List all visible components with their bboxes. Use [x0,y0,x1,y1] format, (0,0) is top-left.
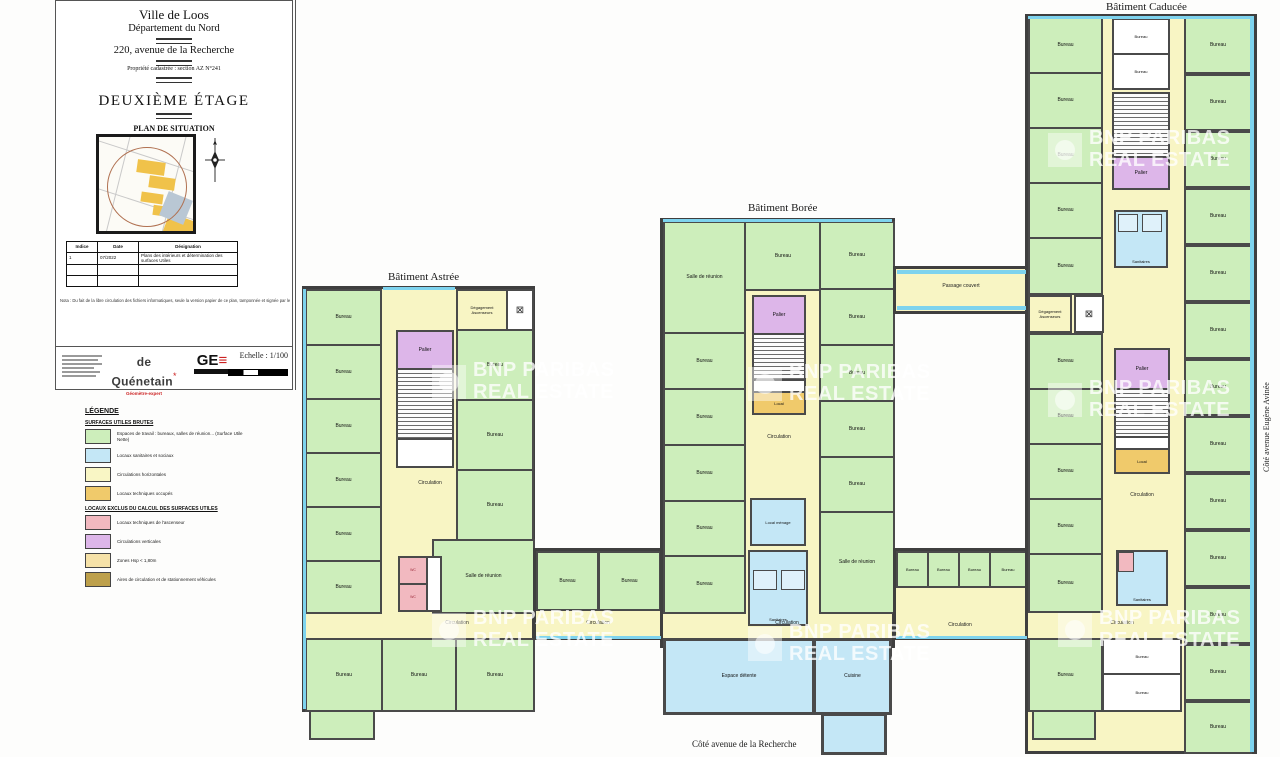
room-label: Bureau [1033,42,1098,48]
room-bureau: Bureau [927,551,960,588]
legend-item-label: Locaux techniques de l'ascenseur [117,520,185,526]
room-cuisine: Cuisine [813,638,892,715]
room-bureau: Bureau [819,400,895,458]
address-text-bar [62,363,102,365]
room-label: Bureau [1189,42,1248,48]
address-text-bar [62,359,98,361]
room-label: Bureau [1033,97,1098,103]
surveyor-subtitle: Géomètre-expert [104,391,184,396]
room-label: Local ménage [754,520,802,525]
color-swatch [85,486,111,501]
ge-logo-bar [194,369,230,374]
room-label: Sanitaires [1118,259,1164,264]
room-espace-detente: Espace détente [663,638,815,715]
room-wc: WC [398,583,428,612]
room-palier: Palier [396,330,454,370]
table-row [67,276,238,287]
room-bureau: Bureau [1028,638,1103,712]
room-bureau: Bureau [819,288,895,346]
wc-cubicle [1118,214,1138,232]
room-bureau: Bureau [1102,638,1182,675]
revision-col-header: Indice [67,242,98,253]
asterisk-mark: * [173,371,177,381]
room-label: Bureau [668,581,741,587]
room-local-technique: Local [1114,448,1170,474]
room-bureau: Bureau [456,399,534,471]
room-bureau: Bureau [305,638,383,712]
room-label: Salle de réunion [824,559,890,565]
window-strip [536,636,661,639]
color-swatch [85,448,111,463]
room-bureau: Bureau [989,551,1027,588]
street-label-bottom: Côté avenue de la Recherche [692,739,796,749]
room-label: Bureau [1189,270,1248,276]
corridor-label: Circulation [1090,620,1154,626]
corridor-label: Circulation [566,620,630,626]
room-label: Bureau [1189,612,1248,618]
room-label: Bureau [930,567,957,572]
room-bureau: Bureau [381,638,457,712]
corridor-label: Circulation [755,620,819,626]
room-salle-reunion: Salle de réunion [432,539,535,614]
room-label: Bureau [461,432,529,438]
room-bureau: Bureau [663,388,746,446]
legend-item: Espaces de travail : bureaux, salles de … [85,429,250,444]
room-label: Bureau [749,253,817,259]
legend-item-label: Locaux techniques occupés [117,491,173,497]
legend-item: Locaux techniques occupés [85,486,250,501]
room-label: Bureau [668,414,741,420]
room-bureau: Bureau [1028,127,1103,184]
wc-cubicle [1142,214,1162,232]
room-bureau: Bureau [1028,553,1103,613]
wc-cubicle [1118,552,1134,572]
color-swatch [85,467,111,482]
revision-designation: Plans des intérieurs et détermination de… [139,253,238,265]
room-label: Cuisine [819,673,886,679]
room-label: Bureau [1189,555,1248,561]
room-label: Palier [1118,366,1166,372]
room-bureau: Bureau [1184,131,1252,188]
room-bureau: Bureau [744,221,822,291]
room-label: WC [401,595,425,599]
room-bureau: Bureau [456,469,534,541]
elevator-icon: ⊠ [1085,309,1093,320]
room-bureau: Bureau [456,329,534,401]
color-swatch [85,515,111,530]
room-bureau: Bureau [455,638,535,712]
room-label: Local [756,401,802,406]
table-row: 1 07/2022 Plans des intérieurs et déterm… [67,253,238,265]
staircase [1114,388,1170,438]
room-label: Local [1118,459,1166,464]
room-bureau: Bureau [1028,72,1103,129]
corridor-label: Circulation [425,620,489,626]
room-label: Dégagement Ascenseurs [1032,309,1069,319]
room-bureau [309,710,375,740]
room-bureau: Bureau [1184,530,1252,587]
room-label: Bureau [310,672,378,678]
window-strip [897,270,1026,274]
room-label: Bureau [1033,468,1098,474]
room-label: Palier [756,312,802,318]
room-label: Bureau [1189,441,1248,447]
floor-plan-canvas: Ville de Loos Département du Nord 220, a… [0,0,1280,757]
legend-item-label: Aires de circulation et de stationnement… [117,577,216,583]
legend-item: Circulations verticales [85,534,250,549]
room-wc: WC [398,556,428,585]
room-bureau [1032,710,1096,740]
legend-item: Aires de circulation et de stationnement… [85,572,250,587]
window-strip [897,306,1026,310]
floor-title: DEUXIÈME ÉTAGE [56,93,292,110]
address-text-bar [62,375,96,377]
room-label: Bureau [1033,523,1098,529]
room-bureau: Bureau [1028,333,1103,390]
room-label: Bureau [1189,99,1248,105]
divider [156,38,192,44]
room-label: Bureau [1107,690,1177,695]
room-bureau: Bureau [1184,188,1252,245]
window-strip [1250,17,1254,752]
room-bureau: Bureau [598,551,661,611]
room-bureau: Bureau [1184,587,1252,644]
room-label: Bureau [824,252,890,258]
room-label: Bureau [310,531,377,537]
legend-item-label: Zones Hsp < 1,80m [117,558,156,564]
room-label: Bureau [310,369,377,375]
legend: LÉGENDE SURFACES UTILES BRUTES Espaces d… [85,408,250,591]
room-label: Bureau [310,314,377,320]
situation-map [96,134,196,234]
room-label: Bureau [1033,152,1098,158]
room-bureau: Bureau [819,344,895,402]
room-palier: Palier [1112,156,1170,190]
room-bureau: Bureau [819,221,895,290]
room-degagement: Dégagement Ascenseurs [1028,295,1072,333]
room-label: Bureau [824,370,890,376]
room-label: Dégagement Ascenseurs [460,305,504,315]
table-row [67,265,238,276]
address-text-bar [62,371,100,373]
room-label: Bureau [461,362,529,368]
room-cuisine-annex [821,713,887,755]
room-bureau: Bureau [1184,473,1252,530]
room-bureau: Bureau [1028,388,1103,445]
window-strip [383,287,455,290]
wc-cubicle [781,570,805,590]
floor-plan-sheet: { "title_block": { "city": "Ville de Loo… [0,0,1280,757]
situation-title: PLAN DE SITUATION [56,124,292,133]
stair-landing [396,438,454,468]
room-label: Bureau [1189,327,1248,333]
street-label-right: Côté avenue Eugène Avinée [1262,382,1271,472]
legend-section-title: SURFACES UTILES BRUTES [85,420,250,426]
room-label: Bureau [386,672,452,678]
compass-rose-icon [202,137,228,183]
corridor-label: Circulation [745,434,813,440]
room-label: Bureau [992,567,1023,572]
room-bureau: Bureau [1102,673,1182,712]
room-bureau: Bureau [305,289,382,346]
room-bureau: Bureau [663,500,746,557]
scale-bar [228,369,288,376]
room-bureau: Bureau [1184,701,1252,754]
room-bureau: Bureau [1184,74,1252,131]
room-bureau: Bureau [1028,237,1103,295]
building-label-boree: Bâtiment Borée [748,202,817,214]
room-bureau: Bureau [958,551,991,588]
room-label: Bureau [1189,156,1248,162]
room-bureau: Bureau [305,452,382,508]
room-label: Bureau [1033,413,1098,419]
legend-item-label: Circulations horizontales [117,472,166,478]
room-bureau: Bureau [1184,245,1252,302]
room-local-technique: Local [752,391,806,415]
room-degagement: Dégagement Ascenseurs [456,289,508,331]
room-bureau: Bureau [819,456,895,513]
room-label: Bureau [1189,724,1248,730]
legend-item: Circulations horizontales [85,467,250,482]
room-label: Bureau [310,477,377,483]
room-label: Bureau [961,567,988,572]
corridor-label: Passage couvert [905,283,1017,289]
room-label: Palier [400,347,450,353]
room-bureau: Bureau [1184,416,1252,473]
legend-item-label: Espaces de travail : bureaux, salles de … [117,431,250,442]
legal-note: Nota : Du fait de la libre circulation d… [60,298,290,303]
room-salle-reunion: Salle de réunion [819,511,895,614]
room-bureau: Bureau [663,555,746,614]
room-label: Bureau [310,584,377,590]
room-bureau: Bureau [305,560,382,614]
room-label: Palier [1116,170,1166,176]
room-label: Bureau [310,423,377,429]
elevator-icon: ⊠ [516,305,524,316]
window-strip [1028,16,1254,19]
title-block-edge-line [295,0,296,390]
room-bureau: Bureau [1028,17,1103,74]
divider [156,113,192,119]
corridor-label: Circulation [398,480,462,486]
room-label: Bureau [1033,580,1098,586]
room-bureau: Bureau [536,551,599,611]
city-title: Ville de Loos [56,7,292,23]
room-bureau: Bureau [1184,359,1252,416]
legend-item: Zones Hsp < 1,80m [85,553,250,568]
staircase [752,333,806,381]
legend-title: LÉGENDE [85,408,250,415]
room-label: Bureau [1116,34,1166,39]
room-bureau: Bureau [305,344,382,400]
staircase [396,368,454,440]
wc-cubicle [753,570,777,590]
legend-item: Locaux techniques de l'ascenseur [85,515,250,530]
room-label: Bureau [1189,384,1248,390]
room-label: Bureau [899,567,926,572]
revision-table: Indice Date Désignation 1 07/2022 Plans … [66,241,238,287]
title-block: Ville de Loos Département du Nord 220, a… [55,0,293,390]
address-text-bar [62,355,102,357]
room-label: Bureau [824,314,890,320]
scale-label: Echelle : 1/100 [222,351,288,360]
room-bureau: Bureau [1028,182,1103,239]
color-swatch [85,429,111,444]
divider [156,77,192,83]
room-local-menage: Local ménage [750,498,806,546]
department-title: Département du Nord [56,23,292,34]
address-text-bar [62,367,94,369]
legend-section-title: LOCAUX EXCLUS DU CALCUL DES SURFACES UTI… [85,506,250,512]
room-shaft [426,556,442,612]
staircase [1112,92,1170,158]
revision-col-header: Désignation [139,242,238,253]
room-label: Bureau [668,358,741,364]
room-label: Bureau [1033,358,1098,364]
room-bureau: Bureau [896,551,929,588]
window-strip [896,636,1027,639]
legend-item-label: Circulations verticales [117,539,161,545]
room-bureau: Bureau [1184,644,1252,701]
room-label: Bureau [1033,672,1098,678]
address-line: 220, avenue de la Recherche [56,45,292,56]
room-label: Bureau [824,481,890,487]
room-palier: Palier [1114,348,1170,390]
corridor-label: Circulation [928,622,992,628]
room-bureau: Bureau [663,444,746,502]
room-label: Bureau [540,578,594,584]
building-label-caducee: Bâtiment Caducée [1106,1,1187,13]
room-bureau: Bureau [1112,53,1170,90]
legend-item: Locaux sanitaires et sociaux [85,448,250,463]
room-bureau: Bureau [1184,302,1252,359]
room-label: WC [401,568,425,572]
room-salle-reunion: Salle de réunion [663,221,746,334]
room-label: Salle de réunion [438,573,529,579]
room-label: Bureau [824,426,890,432]
room-label: Espace détente [672,673,806,679]
room-label: Sanitaires [1120,597,1164,602]
room-bureau: Bureau [1028,498,1103,555]
room-bureau: Bureau [663,332,746,390]
room-label: Bureau [461,502,529,508]
map-radius-circle [107,147,187,227]
room-bureau: Bureau [1184,17,1252,74]
revision-date: 07/2022 [98,253,139,265]
room-label: Bureau [602,578,656,584]
cadastre-line: Propriété cadastrée : section AZ N°241 [56,66,292,72]
room-label: Bureau [1189,498,1248,504]
room-label: Bureau [1116,69,1166,74]
window-strip [663,219,892,222]
color-swatch [85,572,111,587]
corridor-label: Circulation [1118,492,1166,498]
room-palier: Palier [752,295,806,335]
color-swatch [85,553,111,568]
room-label: Bureau [668,470,741,476]
title-block-footer: de Quénetain* Géomètre-expert GE≡ Echell… [56,346,292,391]
room-label: Bureau [1107,654,1177,659]
ge-letters: GE [197,352,219,369]
room-bureau: Bureau [305,506,382,562]
room-label: Salle de réunion [668,274,741,280]
room-label: Bureau [1033,207,1098,213]
building-label-astree: Bâtiment Astrée [388,271,459,283]
room-bureau: Bureau [1112,18,1170,55]
window-strip [303,289,306,709]
room-elevator: ⊠ [1074,295,1104,333]
room-bureau: Bureau [1028,443,1103,500]
room-elevator: ⊠ [506,289,534,331]
room-label: Bureau [1033,263,1098,269]
surveyor-name: de Quénetain [112,355,173,388]
room-label: Bureau [1189,669,1248,675]
revision-index: 1 [67,253,98,265]
revision-col-header: Date [98,242,139,253]
color-swatch [85,534,111,549]
legend-item-label: Locaux sanitaires et sociaux [117,453,174,459]
room-label: Bureau [460,672,530,678]
room-label: Bureau [1189,213,1248,219]
room-label: Bureau [668,525,741,531]
surveyor-logo: de Quénetain* Géomètre-expert [104,353,184,396]
room-bureau: Bureau [305,398,382,454]
